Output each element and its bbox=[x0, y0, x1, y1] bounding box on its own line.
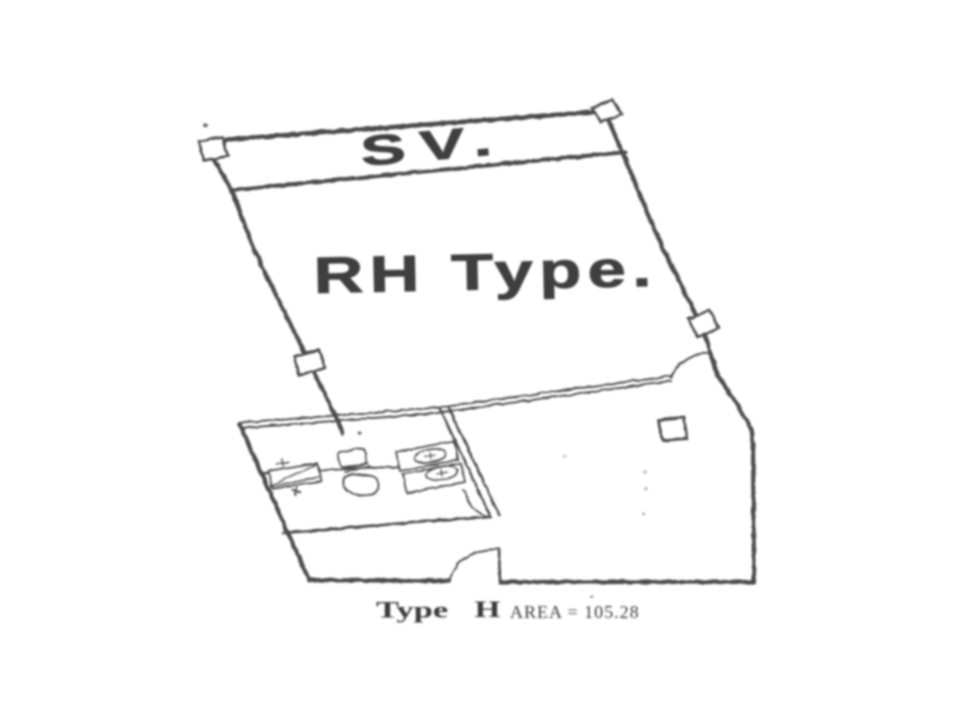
svg-text:H: H bbox=[475, 597, 501, 623]
svg-text:RH Type.: RH Type. bbox=[313, 240, 658, 304]
svg-text:AREA = 105.28: AREA = 105.28 bbox=[510, 602, 640, 622]
svg-text:Type: Type bbox=[376, 598, 448, 623]
